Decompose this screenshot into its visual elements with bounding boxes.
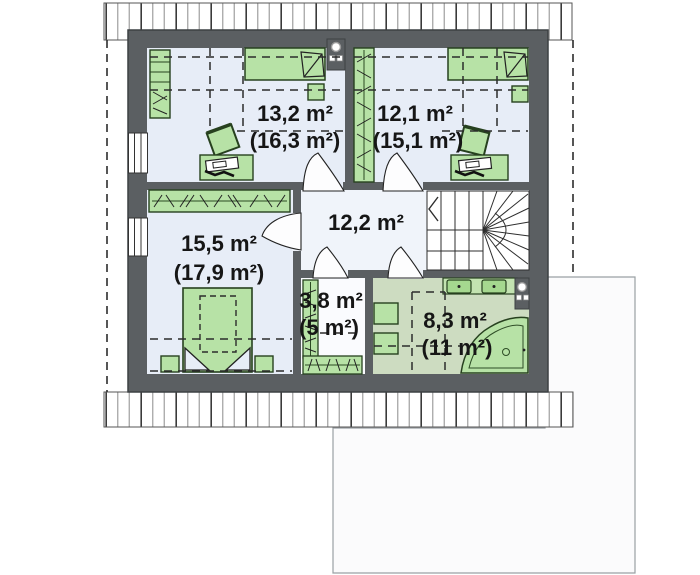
room-area-label: 12,1 m²: [377, 101, 453, 126]
bed-icon: [448, 48, 528, 80]
chimney-icon: [515, 278, 529, 309]
wardrobe-icon: [150, 50, 170, 118]
chimney-icon: [327, 39, 345, 70]
washing-machine-icon: [374, 333, 398, 354]
room-area-label: 12,2 m²: [328, 210, 404, 235]
bed-icon: [245, 48, 325, 80]
desk-icon: [200, 155, 253, 180]
room-area-label: 15,5 m²: [181, 231, 257, 256]
window-icon: [129, 133, 148, 173]
washbasin-counter: [443, 278, 517, 294]
wardrobe-icon: [354, 48, 374, 182]
room-area-label: 13,2 m²: [257, 101, 333, 126]
wardrobe-icon: [303, 356, 362, 374]
room-area-label: 8,3 m²: [423, 308, 487, 333]
room-area-label: 3,8 m²: [299, 288, 363, 313]
room-area-total-label: (17,9 m²): [174, 260, 264, 285]
nightstand-icon: [255, 356, 273, 372]
nightstand-icon: [512, 86, 528, 102]
nightstand-icon: [308, 84, 324, 100]
room-area-total-label: (5 m²): [299, 315, 359, 340]
stairs-icon: [427, 191, 529, 270]
room-area-total-label: (11 m²): [422, 335, 493, 360]
desk-icon: [451, 155, 508, 180]
floor-plan-page: 13,2 m² (16,3 m²) 12,1 m² (15,1 m²) 12,2…: [0, 0, 700, 575]
room-area-total-label: (16,3 m²): [250, 128, 340, 153]
window-icon: [129, 218, 148, 256]
nightstand-icon: [161, 356, 179, 372]
room-area-total-label: (15,1 m²): [373, 128, 463, 153]
double-bed-icon: [183, 288, 252, 372]
floor-plan-drawing: 13,2 m² (16,3 m²) 12,1 m² (15,1 m²) 12,2…: [0, 0, 700, 575]
roof-eaves-hatch-bottom: [104, 392, 573, 427]
wardrobe-icon: [149, 190, 290, 212]
washing-machine-icon: [374, 303, 398, 324]
